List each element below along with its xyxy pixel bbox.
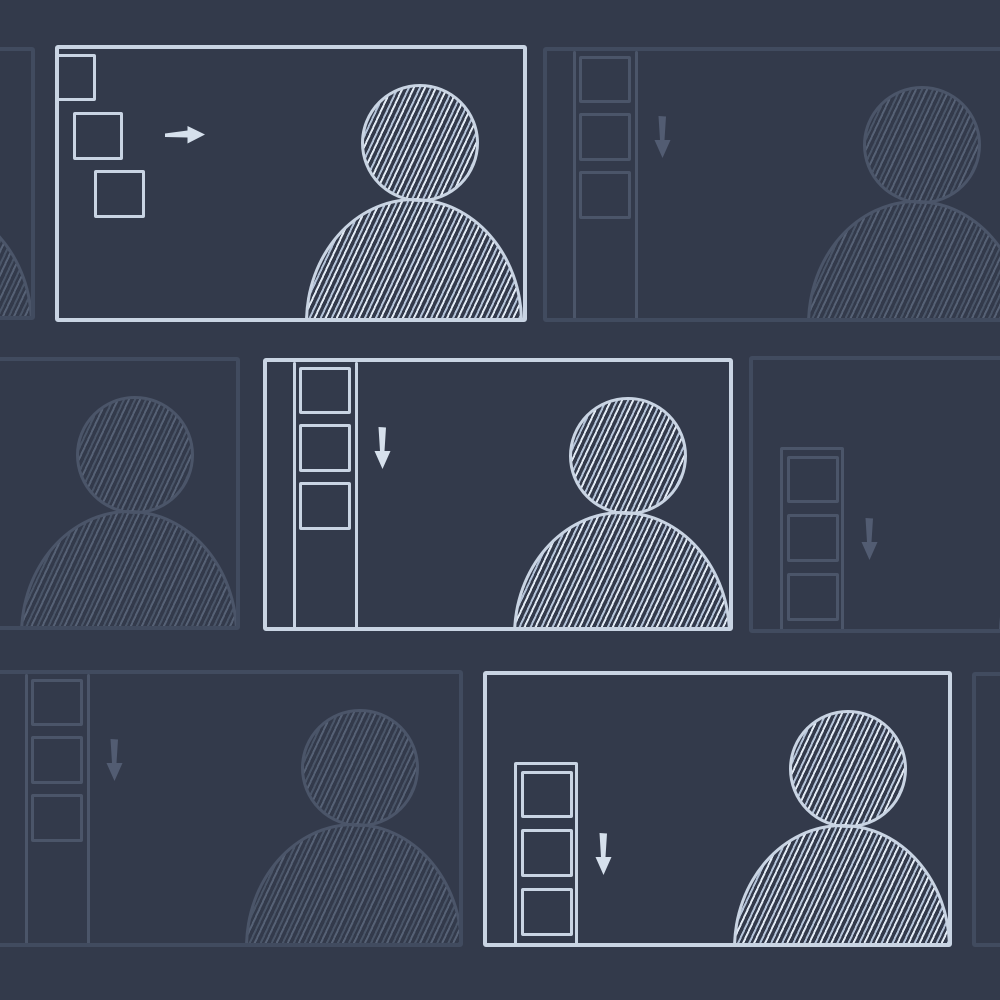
avatar-body	[20, 510, 238, 630]
avatar-head	[789, 710, 907, 828]
arrow-down-icon	[374, 427, 391, 469]
sidebar-square-thumbnail	[299, 482, 351, 530]
sidebar-rail-line	[573, 51, 576, 322]
arrow-down-icon	[595, 833, 612, 875]
sidebar-square-thumbnail	[31, 736, 83, 784]
sidebar-divider-line	[87, 674, 90, 947]
row3-focused-window	[483, 671, 952, 947]
arrow-down-icon	[861, 518, 878, 560]
avatar-head	[76, 396, 194, 514]
sidebar-square-thumbnail	[787, 456, 839, 503]
row2-right-clipped-window	[749, 356, 1000, 633]
sidebar-square-thumbnail	[31, 679, 83, 726]
row2-left-clipped-window	[0, 357, 240, 630]
avatar-body	[807, 200, 1000, 322]
avatar-head	[863, 86, 981, 204]
arrow-down-icon	[106, 739, 123, 781]
avatar-head	[361, 84, 479, 202]
row2-focused-window	[263, 358, 733, 631]
row1-right-window	[543, 47, 1000, 322]
avatar-body	[305, 198, 523, 322]
sidebar-square-thumbnail	[56, 54, 96, 101]
avatar-body	[733, 824, 951, 947]
sidebar-square-thumbnail	[787, 514, 839, 562]
sidebar-square-thumbnail	[299, 424, 351, 472]
sidebar-divider-line	[635, 51, 638, 322]
sidebar-square-thumbnail	[579, 171, 631, 219]
avatar-body	[0, 200, 33, 320]
avatar-body	[513, 511, 731, 631]
sidebar-square-thumbnail	[579, 113, 631, 161]
sidebar-square-thumbnail	[787, 573, 839, 621]
sidebar-rail-line	[293, 362, 296, 631]
avatar-head	[569, 397, 687, 515]
row1-left-clipped-window	[0, 47, 35, 320]
sidebar-square-thumbnail	[521, 829, 573, 877]
sidebar-square-thumbnail	[521, 771, 573, 818]
arrow-right-icon	[165, 124, 206, 146]
sidebar-square-thumbnail	[31, 794, 83, 842]
sidebar-square-thumbnail	[94, 170, 145, 218]
arrow-down-icon	[654, 116, 671, 158]
row3-left-window	[0, 670, 463, 947]
avatar-head	[301, 709, 419, 827]
row1-focused-window	[55, 45, 527, 322]
sidebar-square-thumbnail	[299, 367, 351, 414]
row3-right-clipped-window	[972, 672, 1000, 947]
sidebar-square-thumbnail	[521, 888, 573, 936]
sidebar-square-thumbnail	[579, 56, 631, 103]
sidebar-square-thumbnail	[73, 112, 123, 160]
sidebar-rail-line	[25, 674, 28, 947]
sidebar-divider-line	[355, 362, 358, 631]
sketch-pattern-canvas	[0, 0, 1000, 1000]
avatar-body	[245, 823, 463, 947]
